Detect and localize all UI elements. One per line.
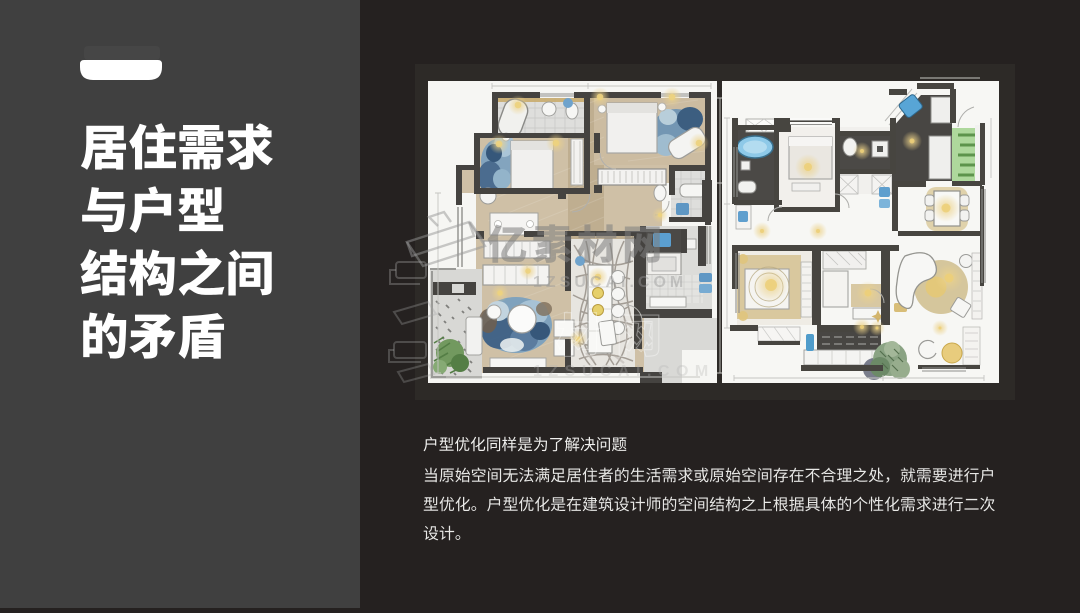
svg-text:1ZSUCAI.COM: 1ZSUCAI.COM (533, 274, 687, 291)
svg-text:1ZSUCAI.COM: 1ZSUCAI.COM (533, 363, 715, 380)
